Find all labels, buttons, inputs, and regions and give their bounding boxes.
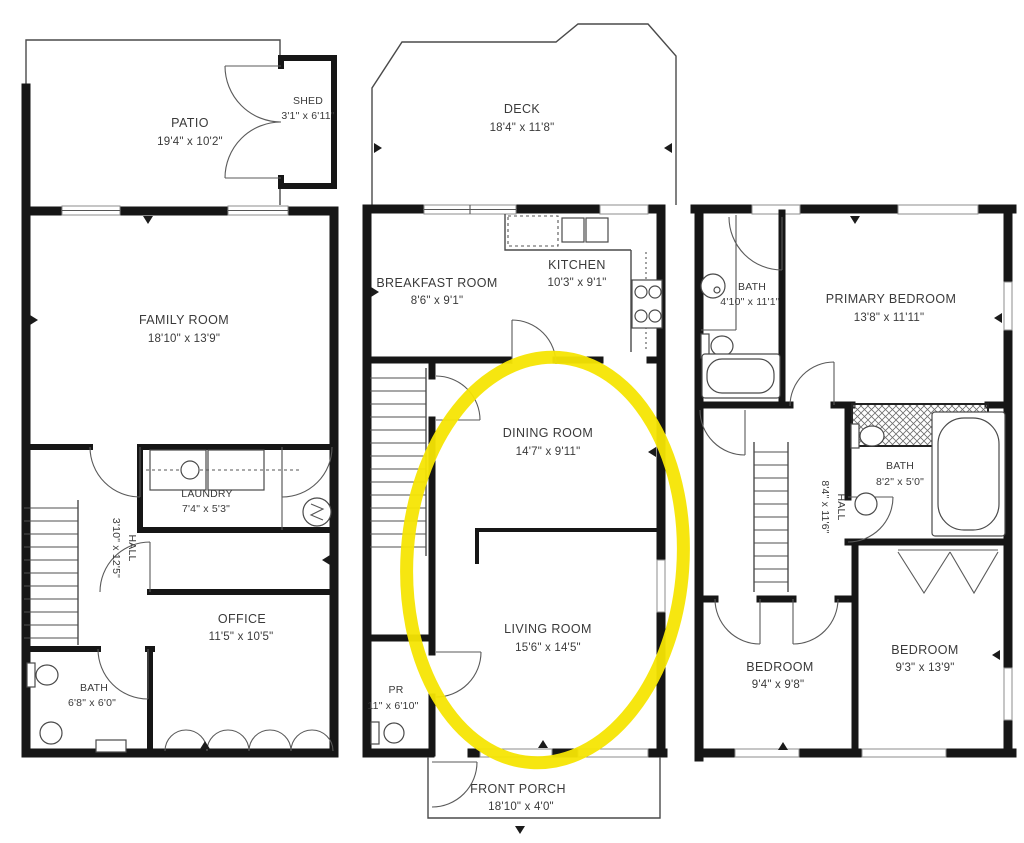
arrow-left-icon: [322, 555, 330, 565]
kitchen-sink-icon: [562, 218, 584, 242]
room-dims-family-room: 18'10" x 13'9": [148, 333, 220, 345]
room-dims-living: 15'6" x 14'5": [515, 642, 581, 654]
toilet-bowl-icon: [36, 665, 58, 685]
arrow-left-icon: [994, 313, 1002, 323]
dishwasher-dashed: [508, 216, 558, 246]
shed-double-door-arc: [225, 66, 281, 178]
bedroom-a-door-arc: [715, 599, 760, 644]
room-dims-dining: 14'7" x 9'11": [516, 446, 581, 458]
window: [600, 205, 648, 214]
room-label-office: OFFICE: [218, 612, 266, 626]
laundry-sink-icon: [181, 461, 199, 479]
unit-main-floor: [367, 24, 676, 818]
room-dims-office: 11'5" x 10'5": [209, 631, 274, 643]
window: [862, 749, 946, 757]
office-door-arc: [100, 542, 150, 592]
room-label-bedroom-a: BEDROOM: [746, 660, 813, 674]
living-door-arc: [436, 652, 481, 697]
window: [657, 560, 665, 612]
hall-door-arc: [90, 447, 140, 497]
room-label-primary-bedroom: PRIMARY BEDROOM: [826, 292, 957, 306]
stairs-upper: [754, 442, 788, 592]
room-dims-bath-first: 6'8" x 6'0": [68, 697, 116, 709]
toilet-tank-icon: [851, 424, 859, 448]
room-dims-laundry: 7'4" x 5'3": [182, 503, 230, 515]
room-label-bedroom-b: BEDROOM: [891, 643, 958, 657]
arrow-down-icon: [515, 826, 525, 834]
window: [898, 205, 978, 214]
room-label-hall-second: HALL: [835, 493, 847, 520]
room-label-front-porch: FRONT PORCH: [470, 782, 566, 796]
room-dims-bath-primary: 4'10" x 11'1": [720, 296, 779, 308]
arrow-up-icon: [778, 742, 788, 750]
arrow-left-icon: [992, 650, 1000, 660]
shed-walls: [281, 58, 334, 186]
tub-inner-icon: [938, 418, 999, 530]
room-dims-deck: 18'4" x 11'8": [490, 122, 555, 134]
window: [1004, 668, 1012, 720]
window: [735, 749, 799, 757]
closet-chevron-doors: [898, 550, 998, 593]
stair-treads: [24, 508, 78, 638]
room-dims-hall-second: 8'4" x 11'6": [819, 480, 831, 533]
sink-icon: [40, 722, 62, 744]
burner-icon: [649, 310, 661, 322]
laundry-appliances: [146, 450, 300, 490]
arrow-left-icon: [664, 143, 672, 153]
drain-icon: [714, 287, 720, 293]
room-label-bath-primary: BATH: [738, 281, 766, 293]
arrow-down-icon: [850, 216, 860, 224]
room-label-pr: PR: [389, 684, 404, 696]
burner-icon: [635, 286, 647, 298]
fixture: [96, 740, 126, 752]
room-dims-patio: 19'4" x 10'2": [157, 136, 223, 148]
arrow-right-icon: [30, 315, 38, 325]
arrow-left-icon: [648, 447, 656, 457]
patio-outline: [26, 40, 280, 205]
room-dims-primary-bedroom: 13'8" x 11'11": [854, 312, 925, 324]
half-wall: [477, 530, 657, 562]
room-label-patio: PATIO: [171, 116, 209, 130]
room-label-bath-first: BATH: [80, 682, 108, 694]
room-label-kitchen: KITCHEN: [548, 258, 606, 272]
room-dims-pr: 11" x 6'10": [367, 700, 418, 712]
burner-icon: [649, 286, 661, 298]
hall-door-arc: [700, 410, 745, 455]
stairs-main: [370, 368, 426, 556]
highlight-ellipse: [393, 348, 697, 772]
room-dims-shed: 3'1" x 6'11": [281, 110, 334, 122]
room-label-deck: DECK: [504, 102, 541, 116]
bedroom-b-door-arc: [793, 599, 838, 644]
room-dims-bedroom-a: 9'4" x 9'8": [752, 679, 804, 691]
room-dims-hall-first: 3'10" x 12'5": [110, 518, 122, 578]
room-label-hall-first: HALL: [126, 534, 138, 561]
room-label-breakfast: BREAKFAST ROOM: [376, 276, 497, 290]
sink-icon: [855, 493, 877, 515]
stair-treads: [754, 452, 788, 582]
room-dims-kitchen: 10'3" x 9'1": [547, 277, 606, 289]
primary-door-arc: [790, 362, 834, 406]
room-label-shed: SHED: [293, 95, 323, 107]
toilet-tank-icon: [27, 663, 35, 687]
room-dims-bath-second: 8'2" x 5'0": [876, 476, 924, 488]
room-label-dining: DINING ROOM: [503, 426, 594, 440]
toilet-bowl-icon: [860, 426, 884, 446]
floor-plan-svg: PATIO 19'4" x 10'2" SHED 3'1" x 6'11" FA…: [0, 0, 1024, 843]
sink-icon: [701, 274, 725, 298]
room-dims-breakfast: 8'6" x 9'1": [411, 295, 463, 307]
room-dims-front-porch: 18'10" x 4'0": [488, 801, 554, 813]
room-label-laundry: LAUNDRY: [181, 488, 232, 500]
toilet-bowl-icon: [711, 336, 733, 356]
tub-inner-icon: [707, 359, 774, 393]
arrow-up-icon: [538, 740, 548, 748]
sink-icon: [384, 723, 404, 743]
stair-treads: [370, 378, 426, 547]
closet-bifold-arcs: [165, 730, 333, 751]
bath-primary-door-arc: [729, 217, 782, 270]
room-label-family-room: FAMILY ROOM: [139, 313, 229, 327]
room-dims-bedroom-b: 9'3" x 13'9": [895, 662, 954, 674]
window: [1004, 282, 1012, 330]
floor-plan: PATIO 19'4" x 10'2" SHED 3'1" x 6'11" FA…: [0, 0, 1024, 843]
toilet-tank-icon: [371, 722, 379, 744]
utility-door-arc: [282, 447, 332, 497]
room-label-bath-second: BATH: [886, 460, 914, 472]
kitchen-sink-icon: [586, 218, 608, 242]
arrow-right-icon: [374, 143, 382, 153]
pr-fixtures: [371, 722, 404, 744]
room-label-living: LIVING ROOM: [504, 622, 592, 636]
arrow-down-icon: [143, 216, 153, 224]
burner-icon: [635, 310, 647, 322]
stairs-lower: [24, 500, 78, 645]
fan-symbol: [303, 498, 331, 526]
window: [752, 205, 800, 214]
